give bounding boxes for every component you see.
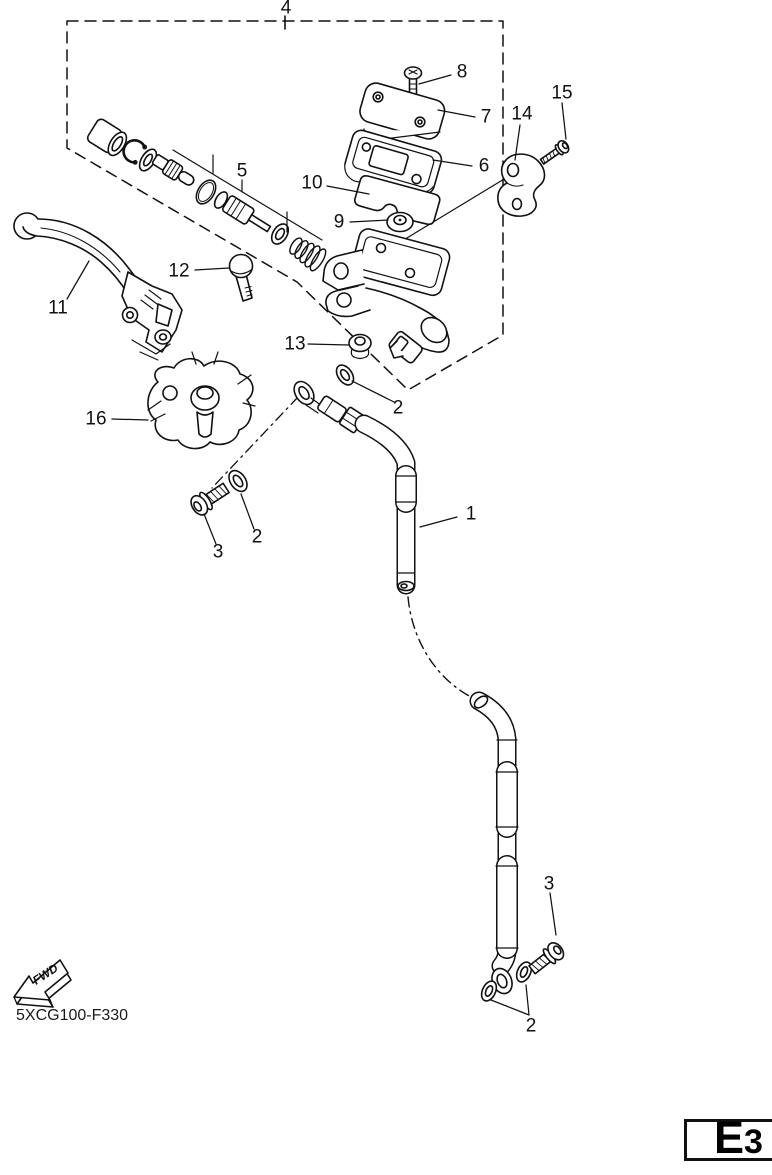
callout-5: 5: [237, 162, 248, 181]
page-ref-box: E3: [684, 1119, 772, 1161]
callout-15: 15: [551, 84, 572, 103]
callout-4: 4: [281, 0, 292, 18]
parts-diagram-page: FWD 48715145106912111321612332 5XCG100-F…: [0, 0, 772, 1175]
callout-7: 7: [481, 108, 492, 127]
callout-3: 3: [544, 875, 555, 894]
callout-2: 2: [393, 399, 404, 418]
callout-10: 10: [301, 174, 322, 193]
callout-8: 8: [457, 63, 468, 82]
callout-9: 9: [334, 213, 345, 232]
page-ref-label: E3: [687, 1120, 763, 1160]
callout-2: 2: [526, 1017, 537, 1036]
callout-12: 12: [168, 262, 189, 281]
callout-layer: 48715145106912111321612332: [0, 0, 772, 1175]
callout-16: 16: [85, 410, 106, 429]
callout-2: 2: [252, 528, 263, 547]
callout-14: 14: [511, 105, 532, 124]
callout-6: 6: [479, 157, 490, 176]
callout-13: 13: [284, 335, 305, 354]
fiche-code: 5XCG100-F330: [16, 1007, 128, 1025]
callout-3: 3: [213, 543, 224, 562]
callout-11: 11: [48, 299, 68, 318]
callout-1: 1: [466, 505, 477, 524]
